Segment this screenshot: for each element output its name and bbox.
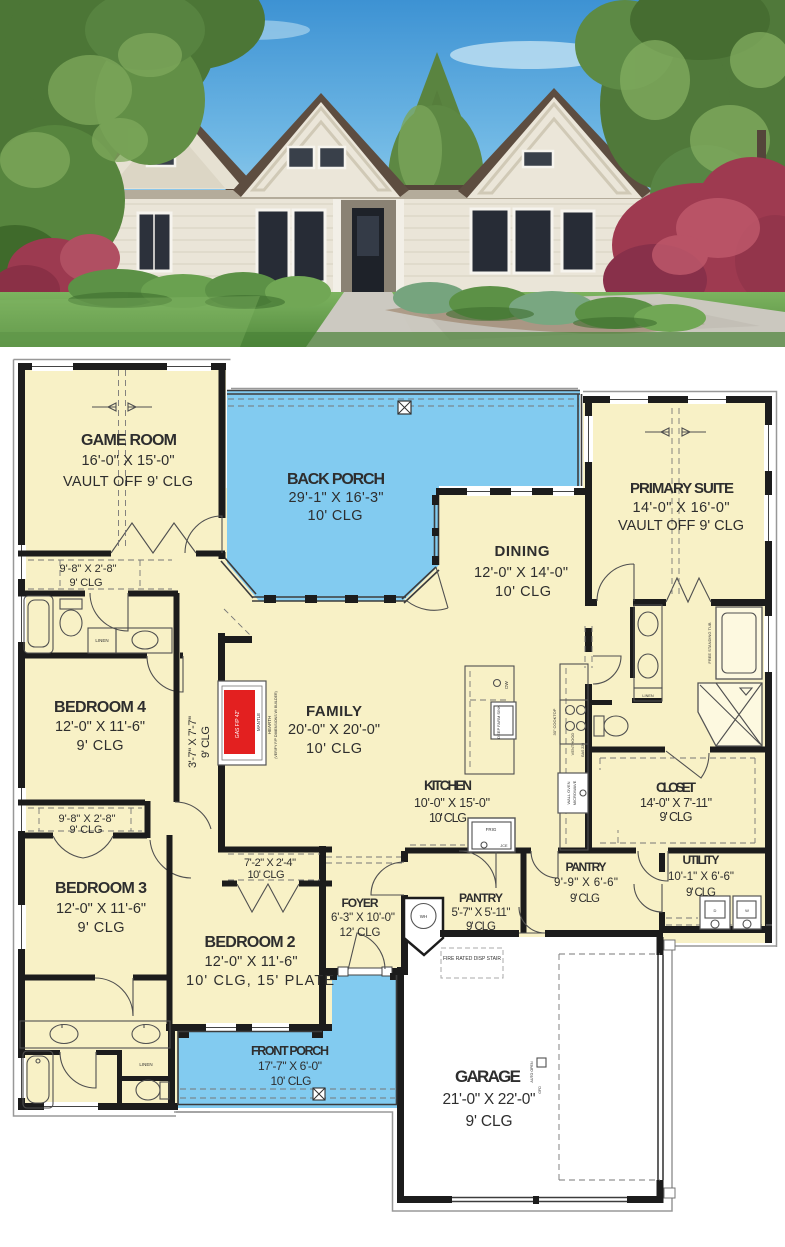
svg-text:BEDROOM 4: BEDROOM 4 [54,699,146,716]
svg-text:5'-7" X 5'-11": 5'-7" X 5'-11" [452,907,511,919]
svg-text:10'-1" X 6'-6": 10'-1" X 6'-6" [668,871,734,883]
svg-text:BEDROOM 3: BEDROOM 3 [55,880,147,897]
svg-text:9'-8" X 2'-8": 9'-8" X 2'-8" [60,563,117,575]
svg-text:FAMILY: FAMILY [306,703,362,720]
svg-text:30" COOKTOP: 30" COOKTOP [552,708,557,735]
svg-text:21'-0" X 22'-0": 21'-0" X 22'-0" [443,1091,536,1108]
svg-text:20'-0" X 20'-0": 20'-0" X 20'-0" [288,722,380,738]
svg-text:VAULT OFF 9' CLG: VAULT OFF 9' CLG [618,518,744,534]
svg-text:12' CLG: 12' CLG [340,927,381,939]
svg-text:10' CLG, 15' PLATE: 10' CLG, 15' PLATE [186,973,334,989]
svg-text:DEEP FARM SINK: DEEP FARM SINK [496,705,501,739]
svg-text:MANTLE: MANTLE [256,713,261,731]
svg-text:KITCHEN: KITCHEN [424,778,472,793]
svg-text:FRIG: FRIG [486,827,497,832]
svg-text:9' CLG: 9' CLG [466,1113,513,1130]
svg-text:3'-7" X 7'-7": 3'-7" X 7'-7" [187,716,199,768]
svg-text:BACK PORCH: BACK PORCH [287,471,385,488]
svg-text:D: D [714,908,717,913]
svg-text:14'-0" X 16'-0": 14'-0" X 16'-0" [633,500,730,516]
svg-text:CLOSET: CLOSET [656,780,697,795]
svg-text:FOYER: FOYER [342,896,379,910]
svg-text:17'-7" X 6'-0": 17'-7" X 6'-0" [258,1059,322,1073]
svg-text:14'-0" X 7'-11": 14'-0" X 7'-11" [640,796,712,810]
svg-text:9' CLG: 9' CLG [200,726,212,758]
svg-text:GFD: GFD [538,1086,542,1094]
svg-text:DW: DW [504,681,509,689]
svg-text:LINEN: LINEN [642,694,653,698]
svg-text:6'-3" X 10'-0": 6'-3" X 10'-0" [331,912,395,924]
svg-text:9' CLG: 9' CLG [77,738,124,754]
svg-text:AUTO OPEN: AUTO OPEN [530,1061,534,1083]
svg-text:(VERIFY F/P DIMENSIONS W/ BUIL: (VERIFY F/P DIMENSIONS W/ BUILDER) [274,691,278,759]
svg-text:GAS F/P 42": GAS F/P 42" [235,710,241,739]
svg-text:VENTHOOD: VENTHOOD [570,733,575,756]
svg-text:GAME ROOM: GAME ROOM [81,432,177,449]
svg-text:12'-0" X 14'-0": 12'-0" X 14'-0" [474,565,568,581]
svg-text:FRONT PORCH: FRONT PORCH [251,1044,329,1058]
svg-text:WALL OVEN: WALL OVEN [566,781,571,804]
svg-text:FIRE RATED DISP STAIR: FIRE RATED DISP STAIR [443,956,501,962]
svg-text:MICROWAVE: MICROWAVE [572,780,577,805]
svg-text:9' CLG: 9' CLG [686,887,716,899]
svg-text:10'-0" X 15'-0": 10'-0" X 15'-0" [414,796,490,810]
svg-text:10' CLG: 10' CLG [271,1074,312,1088]
svg-text:UTILITY: UTILITY [683,853,720,867]
svg-text:12'-0" X 11'-6": 12'-0" X 11'-6" [56,901,146,917]
svg-text:WH: WH [420,914,428,919]
svg-text:GAS 220: GAS 220 [581,743,585,757]
svg-text:29'-1" X 16'-3": 29'-1" X 16'-3" [289,490,384,506]
svg-text:JCE: JCE [500,844,508,848]
svg-text:10' CLG: 10' CLG [495,584,551,600]
svg-text:10' CLG: 10' CLG [306,741,362,757]
svg-text:PANTRY: PANTRY [566,860,607,874]
svg-text:10' CLG: 10' CLG [248,869,285,881]
svg-text:FREE STANDING TUB: FREE STANDING TUB [707,622,712,664]
svg-text:LINEN: LINEN [139,1062,152,1067]
svg-text:DINING: DINING [495,543,550,560]
svg-text:12'-0" X 11'-6": 12'-0" X 11'-6" [205,954,298,970]
svg-text:GARAGE: GARAGE [455,1067,521,1086]
svg-text:12'-0" X 11'-6": 12'-0" X 11'-6" [55,719,145,735]
svg-text:VAULT OFF 9' CLG: VAULT OFF 9' CLG [63,474,193,490]
svg-text:9' CLG: 9' CLG [660,810,693,824]
svg-text:9' CLG: 9' CLG [70,577,103,589]
svg-text:9' CLG: 9' CLG [570,893,600,905]
svg-text:9' CLG: 9' CLG [70,824,103,836]
svg-text:LINEN: LINEN [95,638,108,643]
svg-text:HEARTH: HEARTH [267,716,272,734]
svg-text:9' CLG: 9' CLG [78,920,125,936]
svg-text:10' CLG: 10' CLG [429,811,467,825]
svg-text:7'-2" X 2'-4": 7'-2" X 2'-4" [244,857,296,869]
svg-text:9'-9" X 6'-6": 9'-9" X 6'-6" [554,877,618,889]
svg-text:16'-0" X 15'-0": 16'-0" X 15'-0" [82,453,175,469]
svg-text:BEDROOM 2: BEDROOM 2 [205,934,296,951]
svg-text:9' CLG: 9' CLG [466,921,496,933]
svg-text:PANTRY: PANTRY [459,891,503,905]
svg-text:10' CLG: 10' CLG [308,508,363,524]
svg-text:W: W [745,908,749,913]
svg-text:PRIMARY SUITE: PRIMARY SUITE [630,480,734,497]
